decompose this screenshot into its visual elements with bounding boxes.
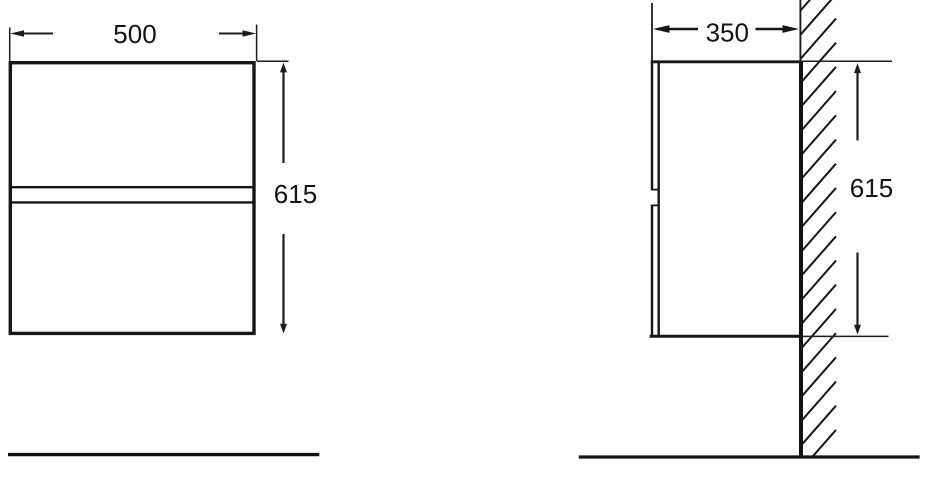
svg-text:615: 615 bbox=[850, 173, 893, 203]
svg-text:350: 350 bbox=[706, 18, 749, 48]
svg-text:500: 500 bbox=[113, 19, 156, 49]
svg-text:615: 615 bbox=[274, 179, 317, 209]
